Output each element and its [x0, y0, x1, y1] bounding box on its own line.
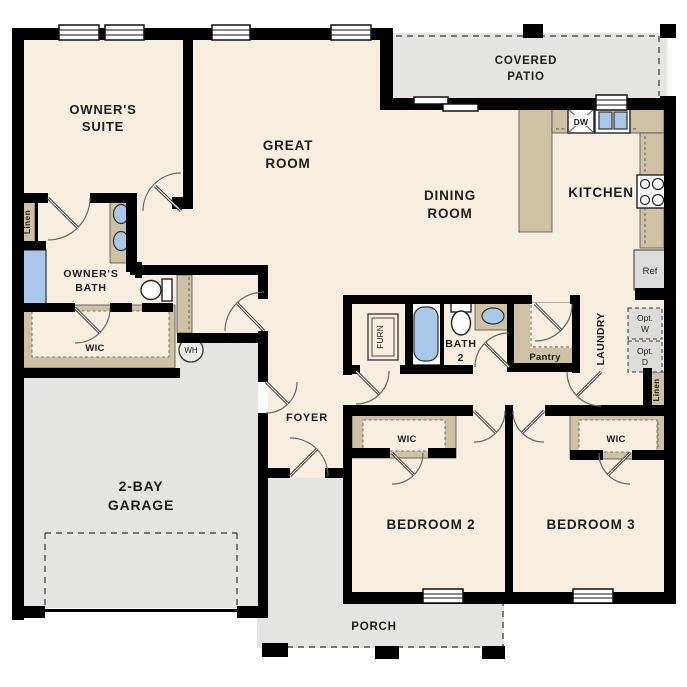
label-linen-hall: Linen	[652, 379, 661, 402]
label-owners-bath: OWNER'S	[63, 268, 118, 280]
label-dining-room-2: ROOM	[427, 206, 472, 221]
label-owners-bath-2: BATH	[75, 282, 107, 294]
kitchen-sink	[595, 108, 630, 133]
label-opt-dryer-2: D	[642, 357, 648, 367]
label-water-heater: WH	[184, 346, 198, 355]
label-bath2: BATH	[445, 338, 477, 350]
room-corridor-floor	[343, 368, 580, 410]
label-porch: PORCH	[351, 621, 397, 633]
label-bed3-wic: WIC	[606, 434, 625, 445]
wall-greatroom-ne	[380, 28, 393, 110]
owners-toilet	[141, 279, 172, 301]
label-owners-suite: OWNER'S	[69, 102, 136, 117]
coat-closet-shelf	[177, 275, 192, 333]
label-owners-suite-2: SUITE	[82, 119, 124, 134]
bath2-sink	[482, 308, 504, 324]
patio-post-ne	[660, 24, 676, 38]
window-great-room-1	[212, 25, 250, 40]
label-furnace: FURN	[375, 325, 385, 349]
wall-bed2-bed3	[505, 416, 513, 592]
label-great-room-2: ROOM	[265, 156, 310, 171]
label-owners-wic: WIC	[85, 343, 104, 354]
label-bed2-wic: WIC	[397, 434, 416, 445]
label-refrigerator: Ref	[643, 266, 658, 277]
label-garage-2: GARAGE	[108, 497, 174, 513]
label-kitchen: KITCHEN	[568, 185, 634, 200]
wall-hall-top	[343, 295, 513, 304]
window-great-room-2	[331, 25, 371, 40]
wall-bedrooms-bottom	[343, 592, 676, 604]
wall-hall-bottom	[343, 405, 473, 416]
bath2-tub	[414, 307, 438, 361]
patio-post-se	[660, 96, 676, 110]
label-garage: 2-BAY	[119, 478, 164, 494]
wall-wic-garage	[12, 368, 180, 378]
wall-owners-suite-right	[183, 34, 193, 205]
window-owners-suite-2	[105, 25, 144, 40]
stove	[637, 175, 666, 208]
room-foyer-floor	[268, 304, 343, 478]
garage-door-line	[45, 609, 237, 612]
label-opt-washer: Opt.	[637, 313, 653, 323]
floor-plan: OWNER'S SUITE GREAT ROOM COVERED PATIO D…	[0, 0, 687, 687]
label-pantry: Pantry	[529, 352, 561, 363]
label-dishwasher: DW	[574, 117, 589, 127]
patio-post-mid	[523, 24, 543, 38]
kitchen-island	[519, 108, 552, 232]
room-garage	[18, 343, 258, 608]
wall-bed2-left	[343, 405, 352, 592]
wall-left	[12, 28, 24, 620]
label-opt-dryer: Opt.	[637, 346, 653, 356]
wall-garage-bottom-left	[12, 606, 45, 618]
label-opt-washer-2: W	[641, 324, 649, 334]
window-owners-suite-1	[59, 25, 99, 40]
label-laundry: LAUNDRY	[595, 312, 607, 365]
label-great-room: GREAT	[263, 138, 313, 153]
label-bedroom2: BEDROOM 2	[387, 517, 476, 532]
wall-right	[664, 98, 676, 604]
window-bedroom2	[423, 589, 463, 603]
window-kitchen-sink	[596, 95, 627, 110]
wall-garage-right	[258, 413, 268, 608]
label-bath2-2: 2	[458, 352, 465, 364]
label-linen-front: Linen	[22, 210, 32, 234]
label-bedroom3: BEDROOM 3	[547, 517, 636, 532]
label-covered-patio-2: PATIO	[507, 71, 544, 83]
label-covered-patio: COVERED	[495, 55, 557, 67]
label-foyer: FOYER	[286, 412, 328, 424]
bath2-toilet	[451, 303, 471, 335]
window-bedroom3	[573, 589, 613, 603]
label-dining-room: DINING	[424, 188, 476, 203]
floor-plan-canvas: OWNER'S SUITE GREAT ROOM COVERED PATIO D…	[0, 0, 687, 687]
